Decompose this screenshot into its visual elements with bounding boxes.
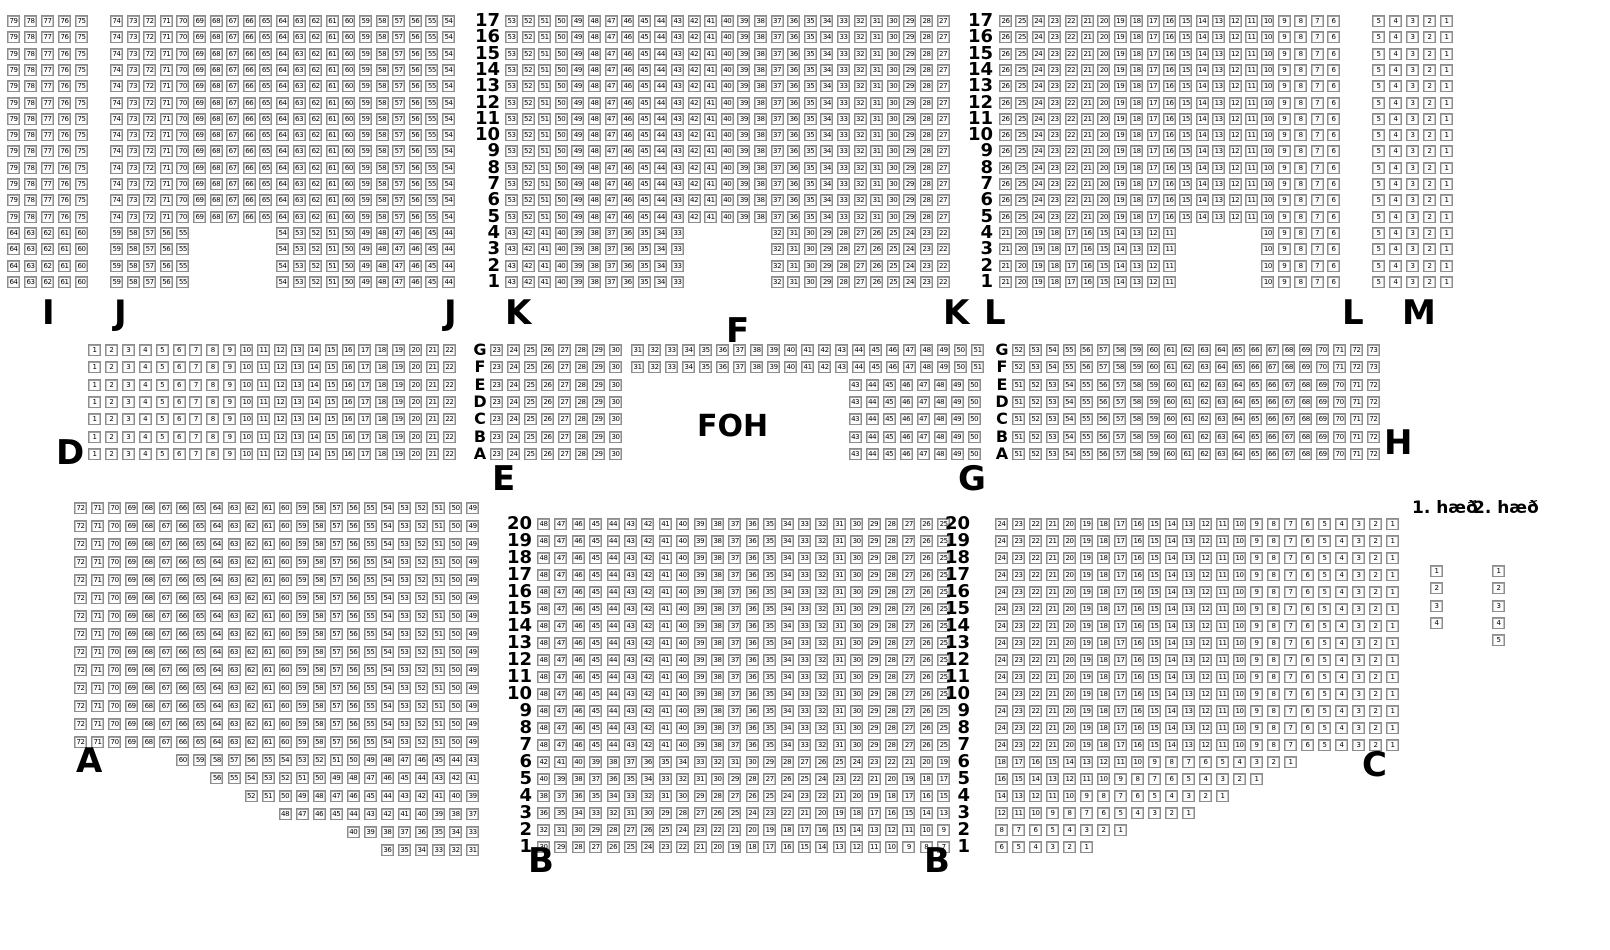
seat[interactable]: 19	[392, 413, 405, 425]
seat[interactable]: 31	[631, 344, 644, 356]
seat[interactable]: 57	[143, 227, 156, 239]
seat[interactable]: 42	[381, 808, 394, 820]
seat[interactable]: 66	[243, 145, 256, 157]
seat[interactable]: 52	[522, 194, 535, 206]
seat[interactable]: 25	[887, 243, 900, 255]
seat[interactable]: 20	[1063, 654, 1076, 666]
seat[interactable]: 63	[24, 260, 37, 272]
seat[interactable]: 32	[449, 844, 462, 856]
seat[interactable]: 47	[605, 162, 618, 174]
seat[interactable]: 7	[1311, 178, 1324, 190]
seat[interactable]: 41	[704, 178, 717, 190]
seat[interactable]: 64	[7, 227, 20, 239]
seat[interactable]: 19	[1114, 64, 1127, 76]
seat[interactable]: 19	[1080, 620, 1093, 632]
seat[interactable]: 41	[704, 64, 717, 76]
seat[interactable]: 32	[676, 773, 689, 785]
seat[interactable]: 31	[554, 824, 567, 836]
seat[interactable]: 3	[1250, 756, 1263, 768]
seat[interactable]: 41	[659, 688, 672, 700]
seat[interactable]: 42	[688, 48, 701, 60]
seat[interactable]: 17	[358, 448, 371, 460]
seat[interactable]: 14	[1165, 552, 1178, 564]
seat[interactable]: 13	[1130, 243, 1143, 255]
seat[interactable]: 37	[728, 739, 741, 751]
seat[interactable]: 41	[704, 15, 717, 27]
seat[interactable]: 19	[1080, 535, 1093, 547]
seat[interactable]: 43	[624, 705, 637, 717]
seat[interactable]: 29	[868, 620, 881, 632]
seat[interactable]: 65	[193, 574, 206, 586]
seat[interactable]: 46	[900, 448, 913, 460]
seat[interactable]: 68	[1282, 344, 1295, 356]
seat[interactable]: 71	[160, 31, 173, 43]
seat[interactable]: 73	[127, 145, 140, 157]
seat[interactable]: 48	[588, 178, 601, 190]
seat[interactable]: 35	[804, 178, 817, 190]
seat[interactable]: 11	[1216, 654, 1229, 666]
seat[interactable]: 50	[449, 610, 462, 622]
seat[interactable]: 65	[193, 664, 206, 676]
seat[interactable]: 19	[1080, 586, 1093, 598]
seat[interactable]: 47	[554, 620, 567, 632]
seat[interactable]: 43	[849, 396, 862, 408]
seat[interactable]: 43	[849, 448, 862, 460]
seat[interactable]: 14	[308, 379, 321, 391]
seat[interactable]: 42	[641, 569, 654, 581]
seat[interactable]: 72	[74, 592, 87, 604]
seat[interactable]: 17	[1114, 603, 1127, 615]
seat[interactable]: 12	[1147, 227, 1160, 239]
seat[interactable]: 58	[313, 610, 326, 622]
seat[interactable]: 49	[951, 413, 964, 425]
seat[interactable]: 32	[854, 80, 867, 92]
seat[interactable]: 22	[711, 824, 724, 836]
seat[interactable]: 17	[798, 824, 811, 836]
seat[interactable]: 60	[342, 64, 355, 76]
seat[interactable]: 1	[1386, 586, 1399, 598]
seat[interactable]: 38	[750, 361, 763, 373]
seat[interactable]: 35	[804, 113, 817, 125]
seat[interactable]: 11	[1216, 739, 1229, 751]
seat[interactable]: 64	[276, 48, 289, 60]
seat[interactable]: 34	[781, 620, 794, 632]
seat[interactable]: 29	[820, 260, 833, 272]
seat[interactable]: 7	[1114, 790, 1127, 802]
seat[interactable]: 48	[376, 243, 389, 255]
seat[interactable]: 31	[870, 80, 883, 92]
seat[interactable]: 40	[676, 637, 689, 649]
seat[interactable]: 45	[589, 705, 602, 717]
seat[interactable]: 10	[1233, 637, 1246, 649]
seat[interactable]: 20	[1097, 194, 1110, 206]
seat[interactable]: 22	[1065, 15, 1078, 27]
seat[interactable]: 56	[409, 194, 422, 206]
seat[interactable]: 31	[833, 603, 846, 615]
seat[interactable]: 64	[210, 592, 223, 604]
seat[interactable]: 2	[1369, 688, 1382, 700]
seat[interactable]: 8	[1267, 705, 1280, 717]
seat[interactable]: 24	[1032, 113, 1045, 125]
seat[interactable]: 54	[276, 276, 289, 288]
seat[interactable]: 63	[293, 15, 306, 27]
seat[interactable]: 22	[443, 344, 456, 356]
seat[interactable]: 20	[409, 344, 422, 356]
seat[interactable]: 38	[537, 790, 550, 802]
seat[interactable]: 52	[415, 628, 428, 640]
seat[interactable]: 59	[296, 700, 309, 712]
seat[interactable]: 75	[75, 64, 88, 76]
seat[interactable]: 24	[850, 756, 863, 768]
seat[interactable]: 12	[1063, 773, 1076, 785]
seat[interactable]: 4	[1389, 178, 1402, 190]
seat[interactable]: 66	[243, 31, 256, 43]
seat[interactable]: 11	[1245, 97, 1258, 109]
seat[interactable]: 36	[746, 552, 759, 564]
seat[interactable]: 5	[1372, 178, 1385, 190]
seat[interactable]: 4	[1492, 617, 1505, 629]
seat[interactable]: 1	[1216, 790, 1229, 802]
seat[interactable]: 13	[1212, 48, 1225, 60]
seat[interactable]: 29	[868, 603, 881, 615]
seat[interactable]: 37	[728, 637, 741, 649]
seat[interactable]: 70	[108, 628, 121, 640]
seat[interactable]: 63	[293, 48, 306, 60]
seat[interactable]: 47	[917, 396, 930, 408]
seat[interactable]: 18	[1130, 31, 1143, 43]
seat[interactable]: 18	[1048, 260, 1061, 272]
seat[interactable]: 31	[833, 569, 846, 581]
seat[interactable]: 43	[624, 620, 637, 632]
seat[interactable]: 24	[995, 654, 1008, 666]
seat[interactable]: 20	[815, 807, 828, 819]
seat[interactable]: 47	[554, 637, 567, 649]
seat[interactable]: 19	[1114, 129, 1127, 141]
seat[interactable]: 27	[902, 620, 915, 632]
seat[interactable]: 38	[754, 162, 767, 174]
seat[interactable]: 63	[293, 129, 306, 141]
seat[interactable]: 61	[1181, 396, 1194, 408]
seat[interactable]: 61	[1164, 361, 1177, 373]
seat[interactable]: 57	[392, 129, 405, 141]
seat[interactable]: 7	[189, 361, 202, 373]
seat[interactable]: 22	[1029, 603, 1042, 615]
seat[interactable]: 22	[1065, 129, 1078, 141]
seat[interactable]: 71	[160, 97, 173, 109]
seat[interactable]: 55	[364, 664, 377, 676]
seat[interactable]: 44	[654, 211, 667, 223]
seat[interactable]: 30	[887, 97, 900, 109]
seat[interactable]: 9	[1250, 552, 1263, 564]
seat[interactable]: 44	[607, 620, 620, 632]
seat[interactable]: 73	[127, 80, 140, 92]
seat[interactable]: 61	[262, 520, 275, 532]
seat[interactable]: 5	[1318, 654, 1331, 666]
seat[interactable]: 53	[398, 592, 411, 604]
seat[interactable]: 79	[7, 129, 20, 141]
seat[interactable]: 33	[837, 129, 850, 141]
seat[interactable]: 31	[694, 773, 707, 785]
seat[interactable]: 26	[999, 48, 1012, 60]
seat[interactable]: 25	[524, 448, 537, 460]
seat[interactable]: 32	[815, 637, 828, 649]
seat[interactable]: 36	[746, 535, 759, 547]
seat[interactable]: 2	[1233, 773, 1246, 785]
seat[interactable]: 78	[24, 129, 37, 141]
seat[interactable]: 2	[1369, 569, 1382, 581]
seat[interactable]: 22	[1029, 688, 1042, 700]
seat[interactable]: 20	[885, 773, 898, 785]
seat[interactable]: 5	[156, 379, 169, 391]
seat[interactable]: 18	[920, 773, 933, 785]
seat[interactable]: 7	[1311, 15, 1324, 27]
seat[interactable]: 19	[868, 790, 881, 802]
seat[interactable]: 27	[937, 211, 950, 223]
seat[interactable]: 45	[425, 243, 438, 255]
seat[interactable]: 61	[326, 145, 339, 157]
seat[interactable]: 14	[308, 448, 321, 460]
seat[interactable]: 30	[850, 603, 863, 615]
seat[interactable]: 28	[920, 15, 933, 27]
seat[interactable]: 44	[654, 97, 667, 109]
seat[interactable]: 69	[125, 628, 138, 640]
seat[interactable]: 51	[538, 64, 551, 76]
seat[interactable]: 12	[1199, 722, 1212, 734]
seat[interactable]: 1	[1440, 194, 1453, 206]
seat[interactable]: 62	[41, 276, 54, 288]
seat[interactable]: 65	[259, 64, 272, 76]
seat[interactable]: 10	[1233, 603, 1246, 615]
seat[interactable]: 8	[206, 344, 219, 356]
seat[interactable]: 52	[309, 227, 322, 239]
seat[interactable]: 70	[176, 178, 189, 190]
seat[interactable]: 3	[1406, 48, 1419, 60]
seat[interactable]: 55	[425, 145, 438, 157]
seat[interactable]: 12	[1029, 790, 1042, 802]
seat[interactable]: 62	[245, 592, 258, 604]
seat[interactable]: 21	[999, 227, 1012, 239]
seat[interactable]: 27	[854, 260, 867, 272]
seat[interactable]: 52	[522, 211, 535, 223]
seat[interactable]: 52	[415, 520, 428, 532]
seat[interactable]: 10	[1261, 162, 1274, 174]
seat[interactable]: 39	[571, 227, 584, 239]
seat[interactable]: 43	[671, 194, 684, 206]
seat[interactable]: 1	[1440, 80, 1453, 92]
seat[interactable]: 39	[737, 31, 750, 43]
seat[interactable]: 4	[1389, 129, 1402, 141]
seat[interactable]: 73	[1367, 361, 1380, 373]
seat[interactable]: 47	[917, 448, 930, 460]
seat[interactable]: 37	[728, 722, 741, 734]
seat[interactable]: 1	[1386, 569, 1399, 581]
seat[interactable]: 51	[432, 592, 445, 604]
seat[interactable]: 50	[449, 646, 462, 658]
seat[interactable]: 58	[313, 664, 326, 676]
seat[interactable]: 34	[781, 739, 794, 751]
seat[interactable]: 11	[1216, 688, 1229, 700]
seat[interactable]: 23	[1012, 654, 1025, 666]
seat[interactable]: 8	[1294, 276, 1307, 288]
seat[interactable]: 19	[1080, 688, 1093, 700]
seat[interactable]: 52	[1029, 413, 1042, 425]
seat[interactable]: 57	[392, 194, 405, 206]
seat[interactable]: 15	[1148, 535, 1161, 547]
seat[interactable]: 5	[1372, 145, 1385, 157]
seat[interactable]: 3	[1406, 243, 1419, 255]
seat[interactable]: 29	[589, 824, 602, 836]
seat[interactable]: 58	[127, 227, 140, 239]
seat[interactable]: 67	[159, 592, 172, 604]
seat[interactable]: 51	[326, 243, 339, 255]
seat[interactable]: 63	[293, 97, 306, 109]
seat[interactable]: 34	[781, 569, 794, 581]
seat[interactable]: 32	[854, 145, 867, 157]
seat[interactable]: 58	[376, 31, 389, 43]
seat[interactable]: 51	[432, 664, 445, 676]
seat[interactable]: 79	[7, 80, 20, 92]
seat[interactable]: 57	[330, 664, 343, 676]
seat[interactable]: 47	[392, 276, 405, 288]
seat[interactable]: 5	[1372, 260, 1385, 272]
seat[interactable]: 22	[1065, 97, 1078, 109]
seat[interactable]: 1	[1440, 260, 1453, 272]
seat[interactable]: 62	[41, 260, 54, 272]
seat[interactable]: 43	[624, 671, 637, 683]
seat[interactable]: 33	[837, 97, 850, 109]
seat[interactable]: 63	[228, 682, 241, 694]
seat[interactable]: 18	[1130, 145, 1143, 157]
seat[interactable]: 6	[1327, 80, 1340, 92]
seat[interactable]: 8	[206, 431, 219, 443]
seat[interactable]: 2	[1423, 145, 1436, 157]
seat[interactable]: 52	[1012, 344, 1025, 356]
seat[interactable]: 61	[326, 162, 339, 174]
seat[interactable]: 75	[75, 48, 88, 60]
seat[interactable]: 72	[143, 129, 156, 141]
seat[interactable]: 1	[1440, 64, 1453, 76]
seat[interactable]: 69	[1316, 413, 1329, 425]
seat[interactable]: 2	[1492, 582, 1505, 594]
seat[interactable]: 26	[999, 211, 1012, 223]
seat[interactable]: 79	[7, 145, 20, 157]
seat[interactable]: 8	[1267, 671, 1280, 683]
seat[interactable]: 21	[1046, 535, 1059, 547]
seat[interactable]: 26	[920, 569, 933, 581]
seat[interactable]: 53	[398, 664, 411, 676]
seat[interactable]: 70	[176, 80, 189, 92]
seat[interactable]: 59	[296, 538, 309, 550]
seat[interactable]: 60	[1164, 431, 1177, 443]
seat[interactable]: 45	[869, 344, 882, 356]
seat[interactable]: 4	[1335, 569, 1348, 581]
seat[interactable]: 50	[449, 664, 462, 676]
seat[interactable]: 8	[1267, 569, 1280, 581]
seat[interactable]: 40	[721, 211, 734, 223]
seat[interactable]: 23	[1048, 31, 1061, 43]
seat[interactable]: 66	[176, 610, 189, 622]
seat[interactable]: 11	[1216, 705, 1229, 717]
seat[interactable]: 32	[815, 705, 828, 717]
seat[interactable]: 28	[885, 688, 898, 700]
seat[interactable]: 66	[176, 700, 189, 712]
seat[interactable]: 44	[654, 129, 667, 141]
seat[interactable]: 26	[920, 705, 933, 717]
seat[interactable]: 60	[342, 48, 355, 60]
seat[interactable]: 59	[296, 646, 309, 658]
seat[interactable]: 35	[804, 15, 817, 27]
seat[interactable]: 61	[262, 556, 275, 568]
seat[interactable]: 21	[728, 824, 741, 836]
seat[interactable]: 29	[868, 671, 881, 683]
seat[interactable]: 52	[415, 592, 428, 604]
seat[interactable]: 63	[293, 178, 306, 190]
seat[interactable]: 4	[1335, 518, 1348, 530]
seat[interactable]: 20	[1097, 97, 1110, 109]
seat[interactable]: 28	[920, 113, 933, 125]
seat[interactable]: 68	[210, 97, 223, 109]
seat[interactable]: 50	[555, 31, 568, 43]
seat[interactable]: 4	[1389, 194, 1402, 206]
seat[interactable]: 72	[143, 178, 156, 190]
seat[interactable]: 69	[125, 682, 138, 694]
seat[interactable]: 77	[41, 211, 54, 223]
seat[interactable]: 39	[737, 194, 750, 206]
seat[interactable]: 72	[74, 628, 87, 640]
seat[interactable]: 57	[1113, 413, 1126, 425]
seat[interactable]: 68	[210, 162, 223, 174]
seat[interactable]: 67	[1282, 448, 1295, 460]
seat[interactable]: 62	[309, 162, 322, 174]
seat[interactable]: 50	[968, 413, 981, 425]
seat[interactable]: 15	[1179, 15, 1192, 27]
seat[interactable]: 5	[1318, 671, 1331, 683]
seat[interactable]: 47	[605, 211, 618, 223]
seat[interactable]: 12	[1199, 535, 1212, 547]
seat[interactable]: 16	[885, 807, 898, 819]
seat[interactable]: 67	[226, 145, 239, 157]
seat[interactable]: 19	[902, 773, 915, 785]
seat[interactable]: 53	[293, 227, 306, 239]
seat[interactable]: 36	[621, 243, 634, 255]
seat[interactable]: 72	[74, 556, 87, 568]
seat[interactable]: 49	[571, 113, 584, 125]
seat[interactable]: 27	[694, 807, 707, 819]
seat[interactable]: 27	[937, 178, 950, 190]
seat[interactable]: 67	[159, 502, 172, 514]
seat[interactable]: 38	[754, 194, 767, 206]
seat[interactable]: 45	[638, 80, 651, 92]
seat[interactable]: 5	[1318, 569, 1331, 581]
seat[interactable]: 15	[1148, 603, 1161, 615]
seat[interactable]: 51	[971, 344, 984, 356]
seat[interactable]: 45	[425, 260, 438, 272]
seat[interactable]: 30	[850, 688, 863, 700]
seat[interactable]: 17	[763, 841, 776, 853]
seat[interactable]: 18	[781, 824, 794, 836]
seat[interactable]: 6	[1301, 569, 1314, 581]
seat[interactable]: 26	[999, 31, 1012, 43]
seat[interactable]: 32	[815, 535, 828, 547]
seat[interactable]: 34	[781, 552, 794, 564]
seat[interactable]: 18	[1097, 552, 1110, 564]
seat[interactable]: 51	[538, 194, 551, 206]
seat[interactable]: 18	[1130, 113, 1143, 125]
seat[interactable]: 54	[381, 502, 394, 514]
seat[interactable]: 4	[1335, 552, 1348, 564]
seat[interactable]: 48	[376, 260, 389, 272]
seat[interactable]: 29	[592, 361, 605, 373]
